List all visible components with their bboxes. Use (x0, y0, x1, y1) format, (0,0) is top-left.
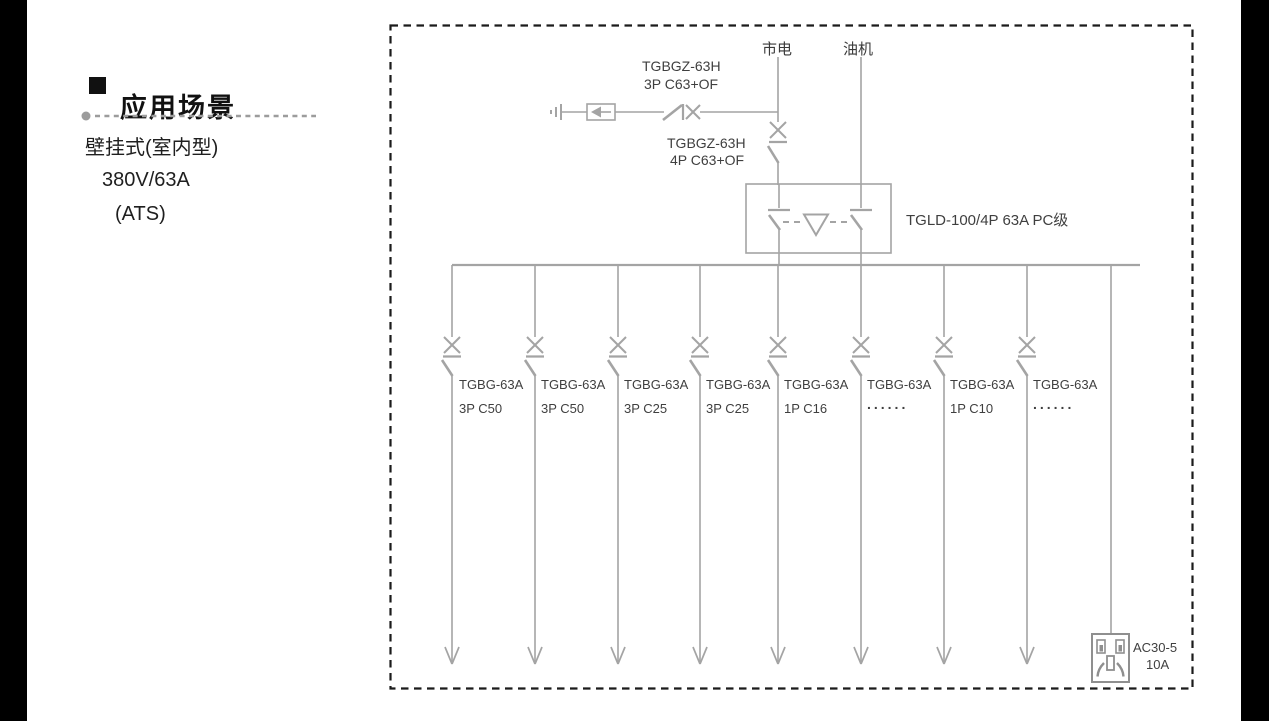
ats-box (746, 184, 891, 265)
diagram-border (391, 26, 1193, 689)
ats-label: TGLD-100/4P 63A PC级 (906, 209, 1068, 230)
branch-label-spec: ...... (1033, 396, 1074, 412)
branch-feeder (934, 265, 953, 664)
branch-feeder (851, 265, 870, 664)
branch-label-spec: ...... (867, 396, 908, 412)
main-breaker-spec: 4P C63+OF (670, 152, 744, 168)
socket-model-label: AC30-5 (1133, 640, 1177, 655)
branch-feeder (1017, 265, 1036, 664)
branch-label-model: TGBG-63A (541, 377, 605, 392)
branch-feeder (768, 265, 787, 664)
branch-label-model: TGBG-63A (784, 377, 848, 392)
main-breaker-model: TGBGZ-63H (667, 135, 746, 151)
spd-breaker-spec: 3P C63+OF (644, 76, 718, 92)
socket-icon (1092, 634, 1129, 682)
branch-label-spec: 1P C10 (950, 401, 993, 416)
branch-label-model: TGBG-63A (867, 377, 931, 392)
branch-label-model: TGBG-63A (950, 377, 1014, 392)
branch-label-model: TGBG-63A (459, 377, 523, 392)
diagram-canvas (0, 0, 1269, 721)
branch-feeders (442, 265, 1036, 664)
spd-breaker-icon (615, 104, 778, 120)
branch-feeder (690, 265, 709, 664)
mains-source-label: 市电 (762, 38, 792, 59)
branch-feeder (442, 265, 461, 664)
branch-label-spec: 1P C16 (784, 401, 827, 416)
branch-label-model: TGBG-63A (1033, 377, 1097, 392)
socket-rating-label: 10A (1146, 657, 1169, 672)
ground-icon (551, 104, 561, 120)
branch-label-spec: 3P C25 (706, 401, 749, 416)
branch-feeder (525, 265, 544, 664)
generator-source-label: 油机 (843, 38, 873, 59)
main-breaker-icon (768, 122, 787, 185)
branch-feeder (608, 265, 627, 664)
branch-label-spec: 3P C50 (541, 401, 584, 416)
spd-icon (587, 104, 615, 120)
branch-label-model: TGBG-63A (624, 377, 688, 392)
branch-label-spec: 3P C50 (459, 401, 502, 416)
spd-breaker-model: TGBGZ-63H (642, 58, 721, 74)
branch-label-model: TGBG-63A (706, 377, 770, 392)
branch-label-spec: 3P C25 (624, 401, 667, 416)
dashed-divider (82, 112, 317, 121)
